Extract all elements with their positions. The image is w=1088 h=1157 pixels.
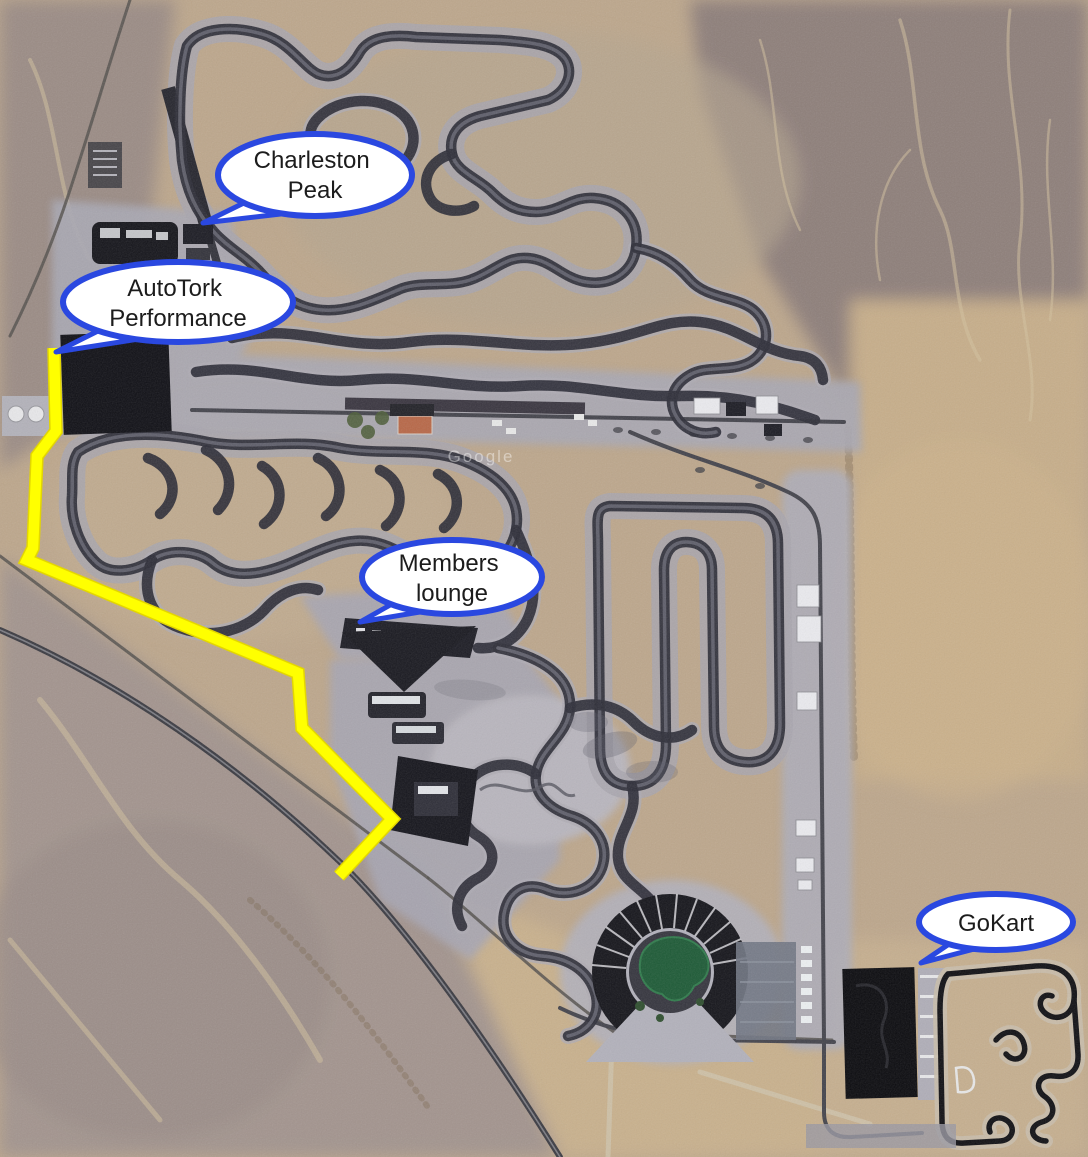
satellite-map: Google Charleston Peak AutoTork Performa… [0,0,1088,1157]
google-watermark: Google [448,447,515,466]
callout-label: GoKart [958,910,1034,937]
